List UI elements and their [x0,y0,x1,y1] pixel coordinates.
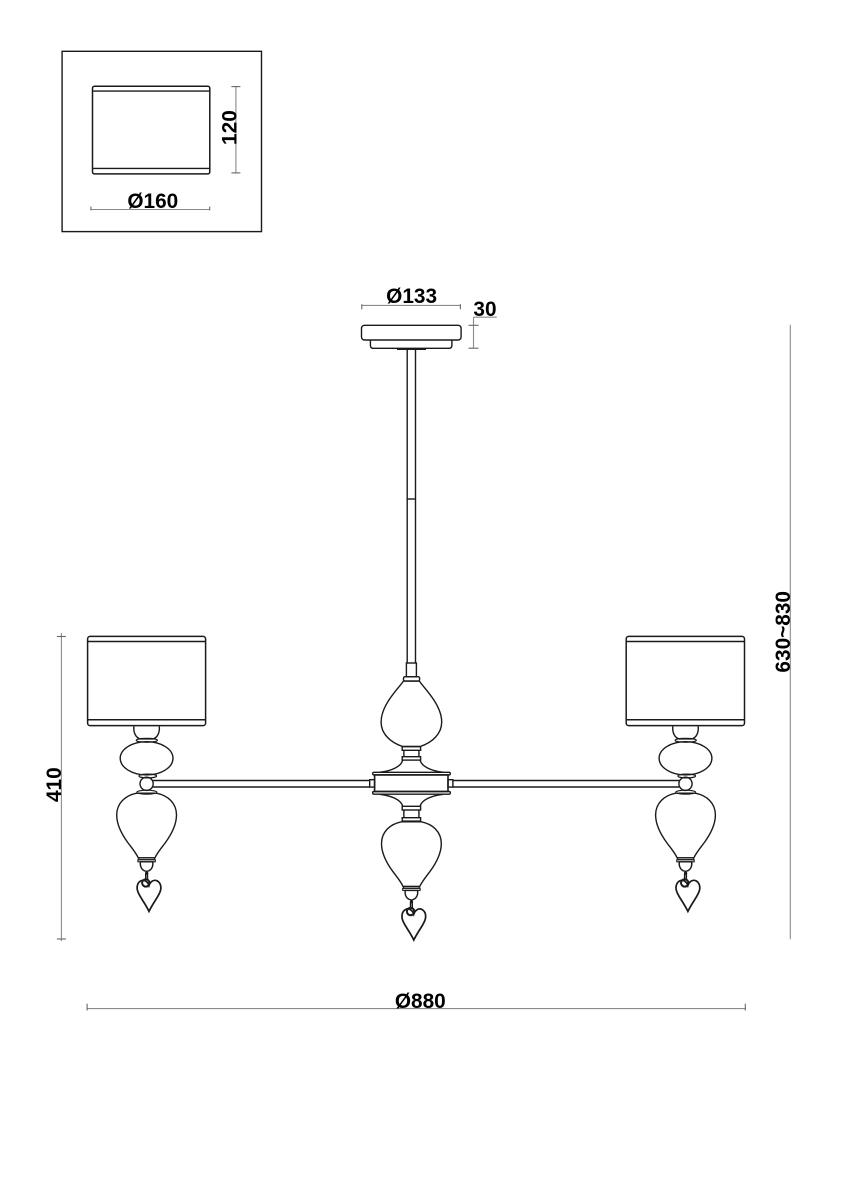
svg-text:630~830: 630~830 [772,591,795,673]
svg-text:Ø133: Ø133 [386,285,437,308]
svg-text:30: 30 [473,298,496,321]
svg-text:120: 120 [219,110,242,145]
svg-text:Ø160: Ø160 [127,190,178,213]
svg-text:Ø880: Ø880 [395,990,446,1013]
svg-text:410: 410 [43,767,66,802]
